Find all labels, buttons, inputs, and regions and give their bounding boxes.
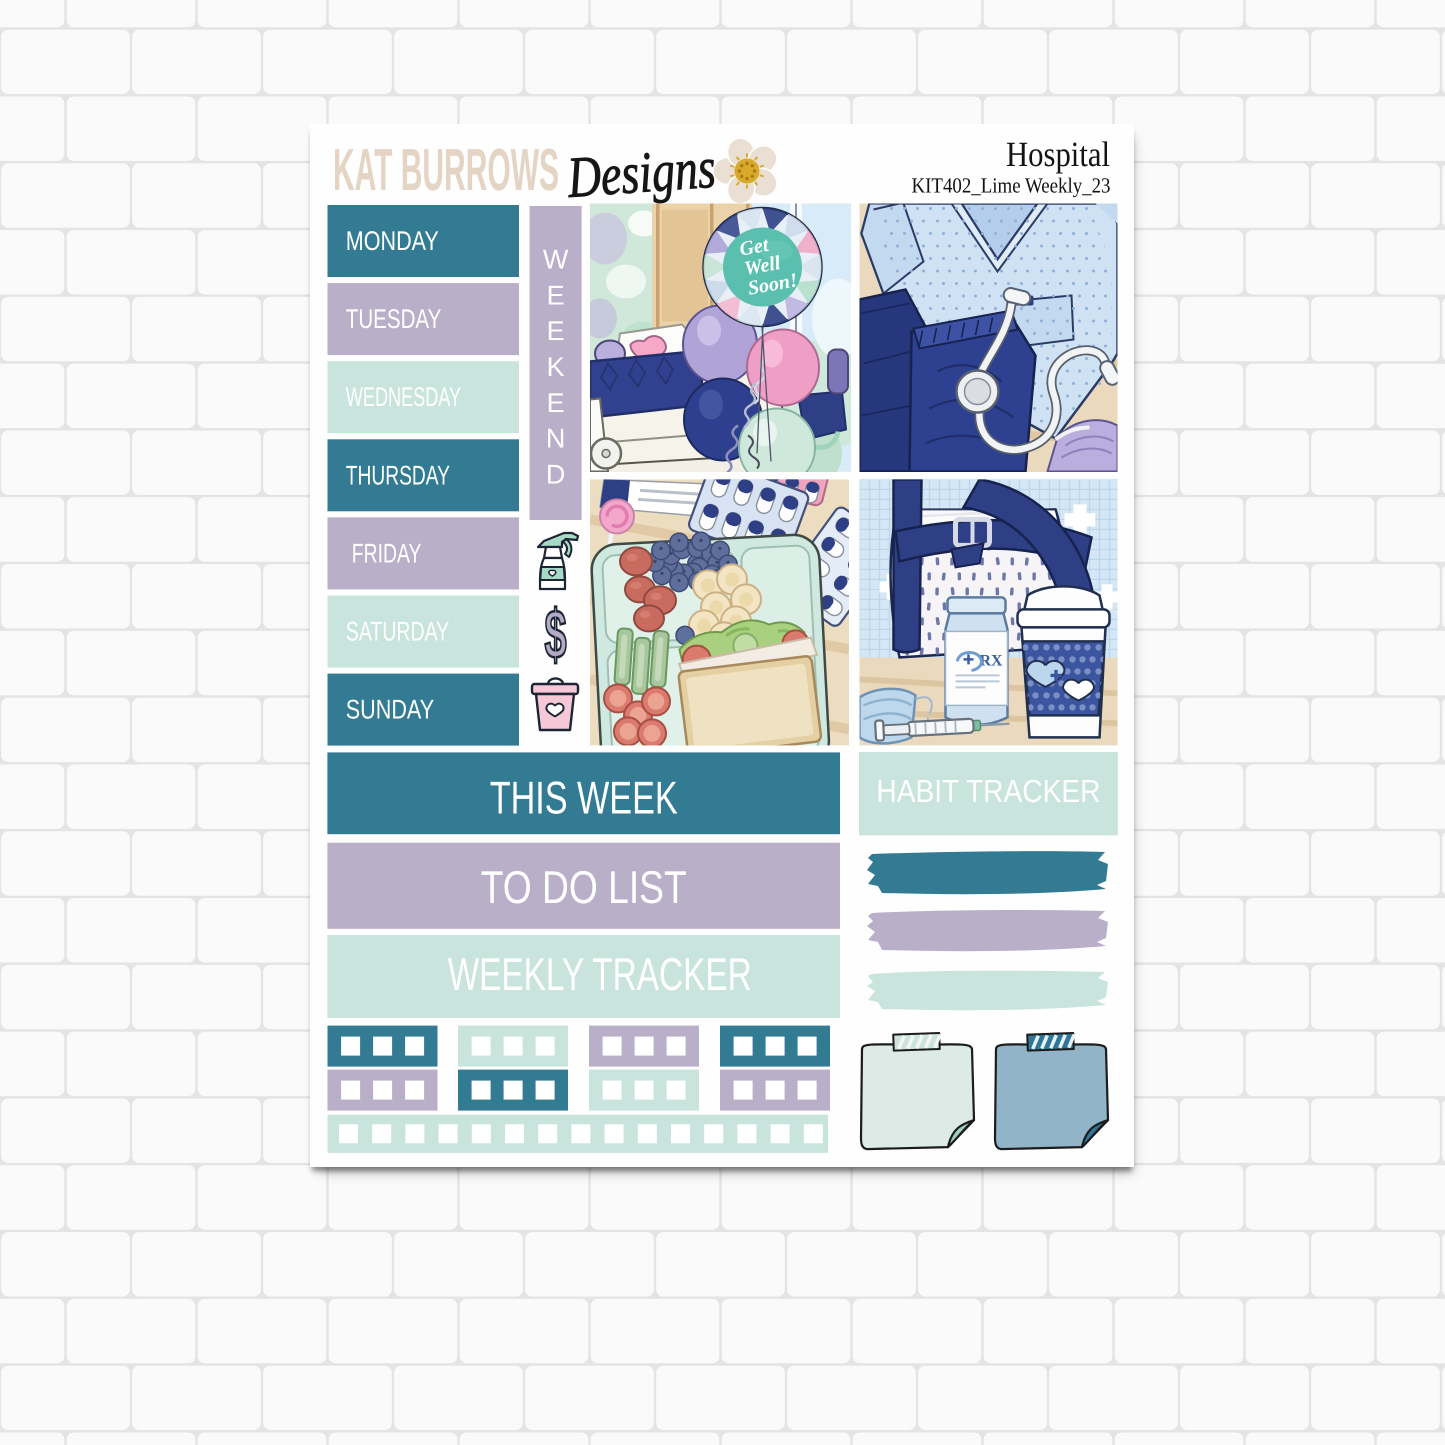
svg-text:HABIT TRACKER: HABIT TRACKER — [876, 773, 1100, 809]
svg-text:TO DO LIST: TO DO LIST — [481, 861, 687, 913]
svg-text:SATURDAY: SATURDAY — [346, 617, 449, 647]
svg-text:K: K — [547, 352, 565, 382]
svg-text:TUESDAY: TUESDAY — [346, 304, 442, 334]
svg-text:RX: RX — [980, 652, 1004, 669]
svg-text:MONDAY: MONDAY — [346, 226, 439, 256]
svg-text:THURSDAY: THURSDAY — [346, 460, 450, 490]
svg-text:SUNDAY: SUNDAY — [346, 695, 434, 725]
svg-text:WEDNESDAY: WEDNESDAY — [346, 382, 461, 412]
svg-text:FRIDAY: FRIDAY — [352, 538, 422, 568]
svg-text:E: E — [547, 388, 565, 418]
svg-text:WEEKLY TRACKER: WEEKLY TRACKER — [448, 948, 752, 1000]
svg-text:$: $ — [544, 595, 566, 673]
svg-text:E: E — [547, 316, 565, 346]
svg-text:KAT BURROWS: KAT BURROWS — [333, 136, 559, 203]
svg-text:W: W — [543, 245, 569, 275]
svg-text:N: N — [546, 424, 566, 454]
svg-text:Designs: Designs — [565, 135, 718, 210]
svg-text:Hospital: Hospital — [1006, 134, 1110, 174]
svg-text:D: D — [546, 459, 566, 489]
svg-text:KIT402_Lime Weekly_23: KIT402_Lime Weekly_23 — [912, 173, 1111, 197]
svg-text:E: E — [547, 280, 565, 310]
svg-text:THIS WEEK: THIS WEEK — [490, 772, 678, 824]
